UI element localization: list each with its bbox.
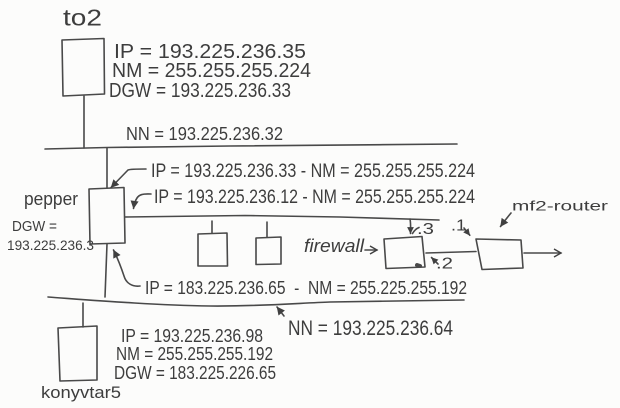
svg-text:to2: to2 [63,5,102,31]
svg-text:pepper: pepper [24,189,78,209]
svg-text:IP = 193.225.236.98: IP = 193.225.236.98 [121,326,263,346]
svg-text:IP = 193.225.236.12 - NM = 2: IP = 193.225.236.12 - NM = 255.255.255.2… [154,187,475,208]
svg-text:DGW = 183.225.226.65: DGW = 183.225.226.65 [114,363,276,383]
svg-text:konyvtar5: konyvtar5 [41,383,121,402]
svg-text:DGW =: DGW = [12,218,57,235]
svg-text:.1: .1 [451,218,466,235]
svg-text:.2: .2 [436,256,453,273]
svg-text:NM = 255.255.255.224: NM = 255.255.255.224 [112,60,311,82]
svg-text:NM = 255.255.255.192: NM = 255.255.255.192 [116,344,273,364]
svg-text:.3: .3 [417,221,434,238]
svg-text:firewall: firewall [304,236,365,256]
svg-text:mf2-router: mf2-router [512,198,608,214]
svg-text:IP = 193.225.236.33 - NM = 2: IP = 193.225.236.33 - NM = 255.255.255.2… [151,161,475,182]
svg-text:DGW = 193.225.236.33: DGW = 193.225.236.33 [109,80,291,102]
svg-text:IP = 183.225.236.65 - NM = 2: IP = 183.225.236.65 - NM = 255.225.255.1… [145,278,467,298]
svg-text:NN = 193.225.236.32: NN = 193.225.236.32 [126,124,283,144]
svg-text:NN = 193.225.236.64: NN = 193.225.236.64 [288,317,453,340]
svg-text:193.225.236.3: 193.225.236.3 [7,237,94,253]
